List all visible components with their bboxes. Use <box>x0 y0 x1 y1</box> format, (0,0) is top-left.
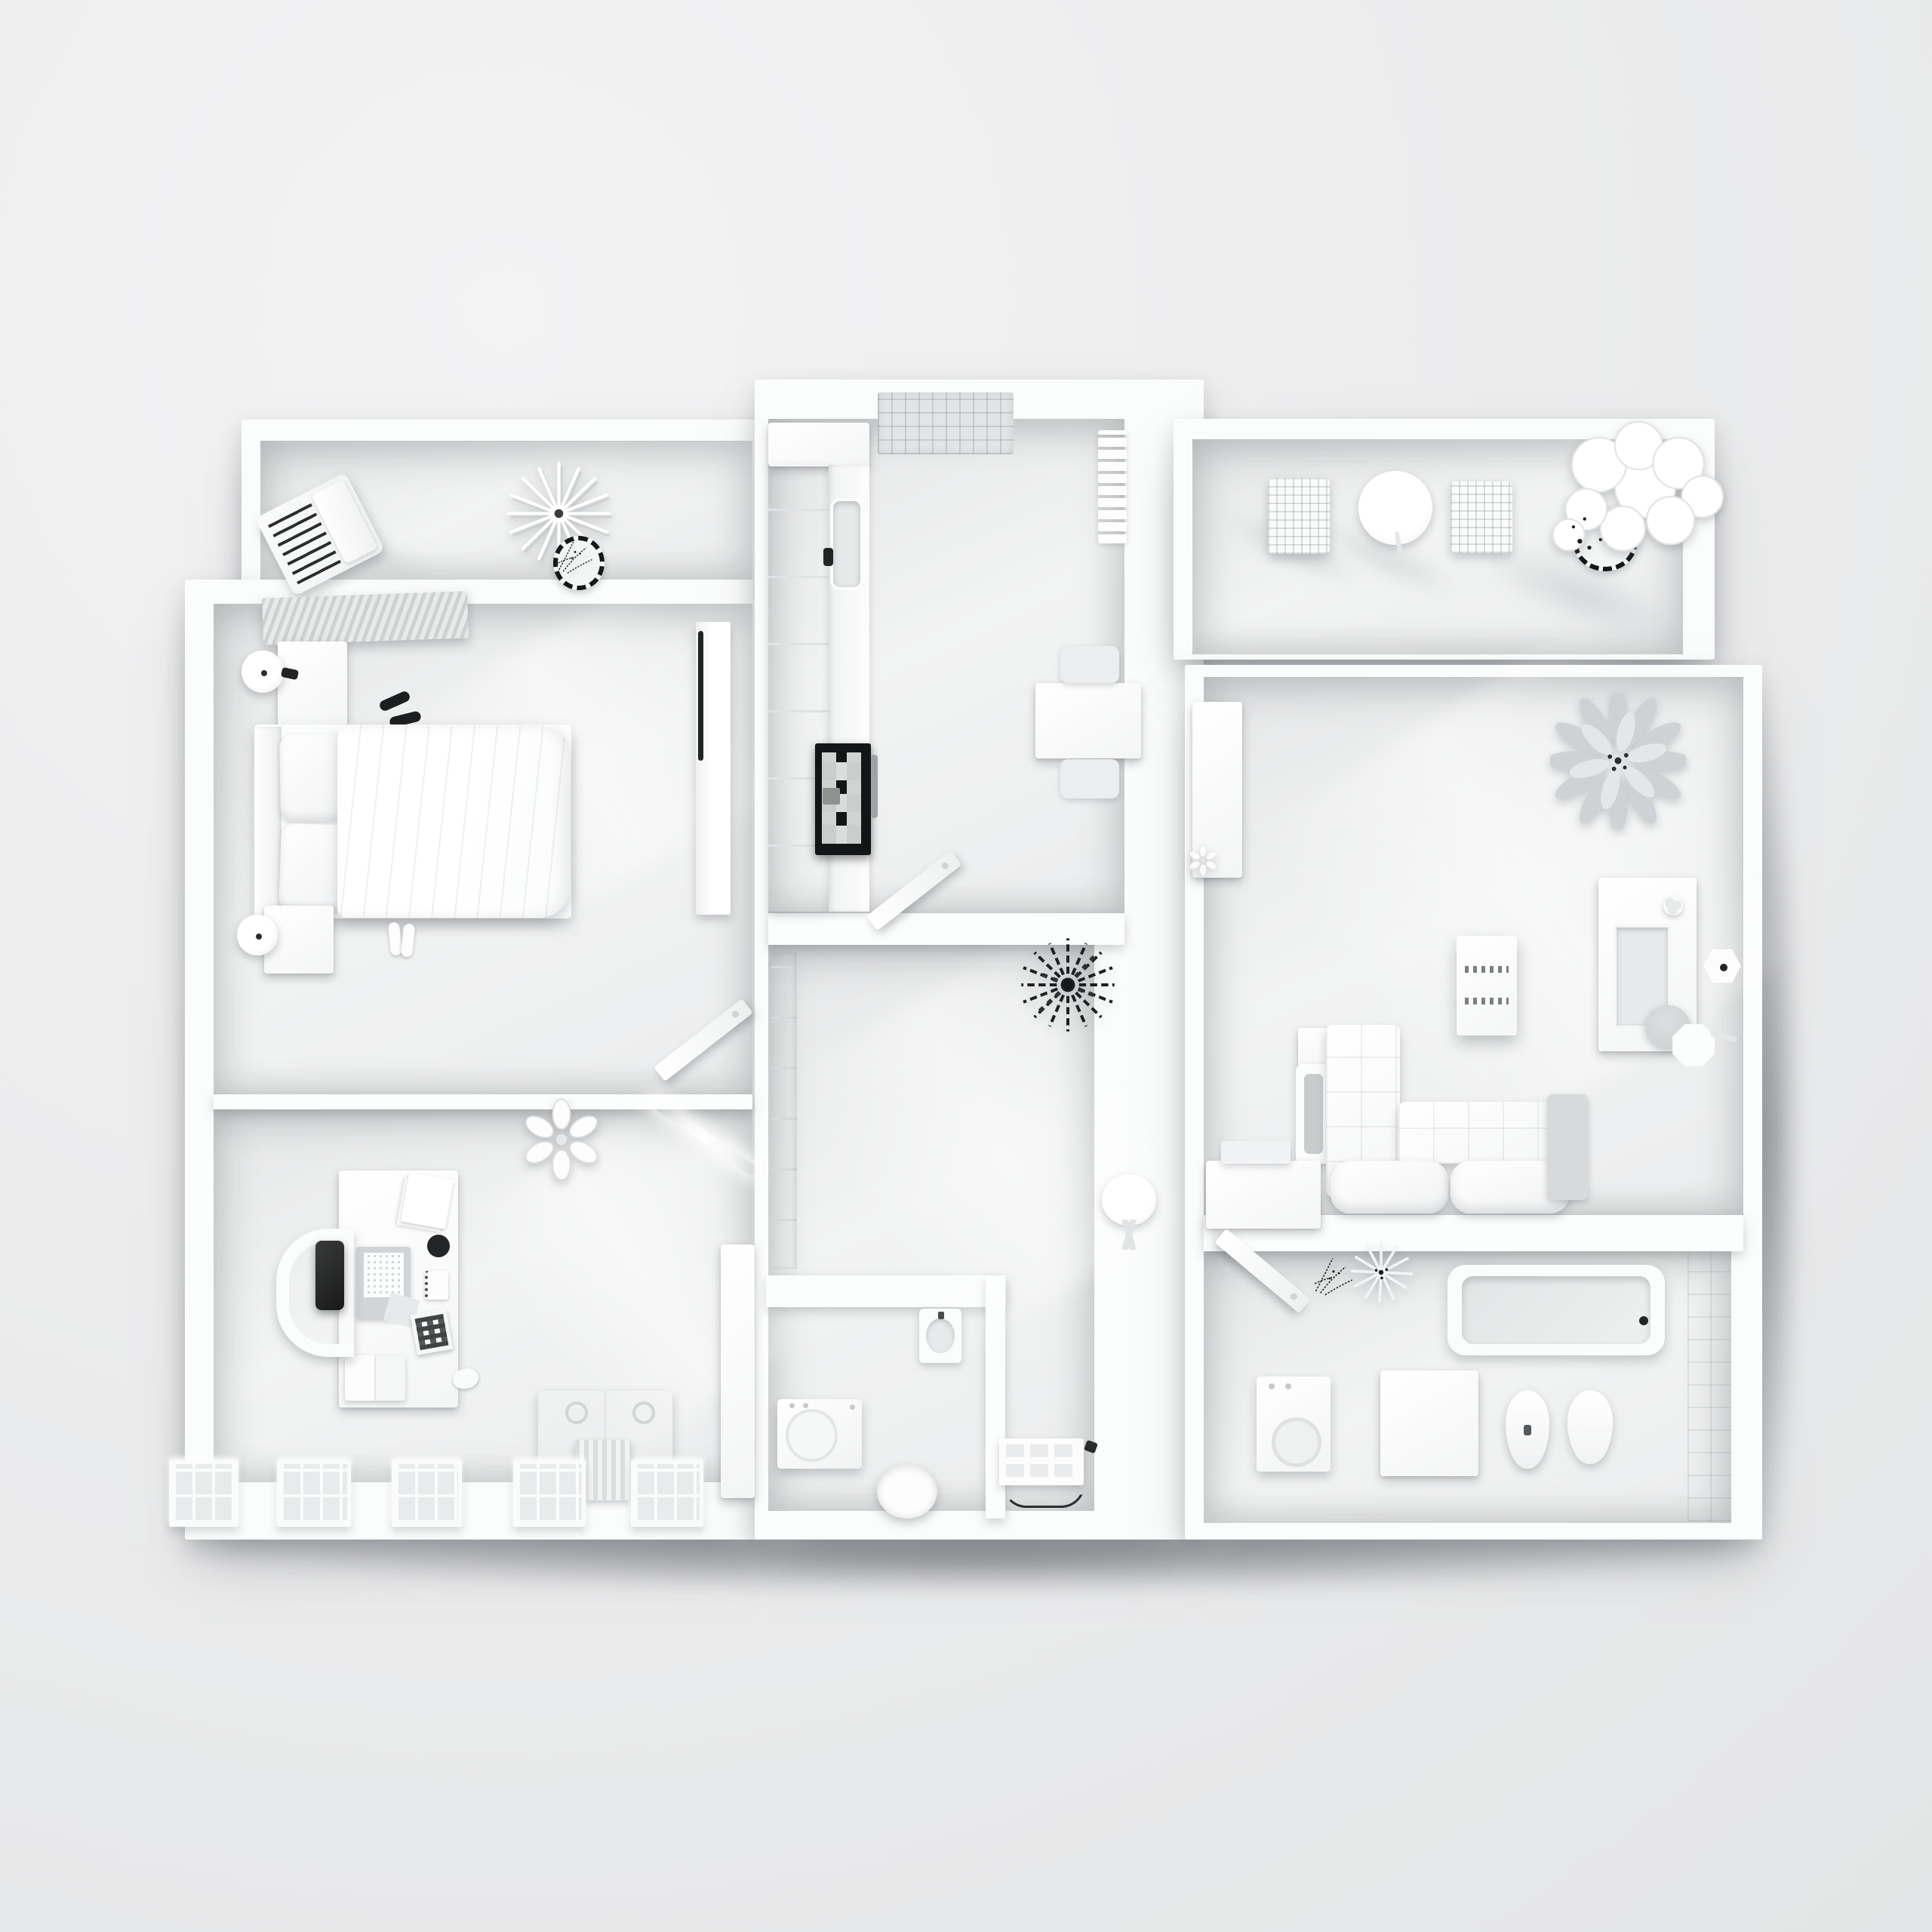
bistro-chair-right <box>1451 481 1512 553</box>
stove <box>815 743 871 855</box>
small-flower <box>1186 844 1220 877</box>
bath-washing-machine <box>1257 1377 1331 1472</box>
magazine <box>411 1309 454 1355</box>
tree-foliage-icon <box>1531 408 1736 583</box>
pot-leaves <box>554 534 596 578</box>
notebook <box>425 1271 448 1300</box>
office-chair-seat <box>315 1241 344 1310</box>
office-window-5 <box>631 1460 703 1527</box>
sofa-corner-block <box>1298 1028 1328 1067</box>
kitchen-ceiling-vent <box>878 392 1014 454</box>
wc-basin <box>919 1309 961 1363</box>
office-window-1 <box>169 1460 238 1527</box>
laundry-basket <box>877 1464 937 1518</box>
bath-wall-tiles <box>1687 1253 1731 1521</box>
bath-spiky-flower <box>1340 1238 1423 1307</box>
door-swing-arc <box>1002 1484 1085 1508</box>
tub-drain <box>1639 1316 1648 1325</box>
open-book <box>345 1355 405 1401</box>
dining-chair-north <box>1060 646 1119 683</box>
coffee-table <box>1206 1161 1321 1229</box>
ac-band <box>1330 712 1481 728</box>
shower-cabinet <box>1380 1371 1478 1476</box>
flower-petals-icon <box>1186 844 1220 877</box>
fridge-top <box>768 423 869 466</box>
papers <box>401 1172 454 1229</box>
ac-vent <box>1374 679 1480 717</box>
pillow-bottom <box>278 823 346 913</box>
hall-shelf-niche <box>771 952 797 1269</box>
duvet <box>337 726 570 918</box>
flower-petals-icon <box>518 1096 605 1183</box>
pedestal-fan-head <box>1102 1174 1156 1226</box>
wc-washing-machine <box>777 1399 862 1469</box>
kitchen-sink <box>830 498 863 590</box>
sofa-seat-1 <box>1331 1161 1448 1214</box>
flower-decal <box>518 1096 605 1183</box>
bathtub <box>1447 1265 1665 1355</box>
office-window-4 <box>513 1460 586 1527</box>
ladder-shelf <box>1098 430 1127 543</box>
office-window-3 <box>392 1460 462 1527</box>
nightstand-top <box>278 641 347 726</box>
tray-decor <box>1221 1141 1291 1164</box>
lamp-bottom <box>237 915 278 955</box>
pillow-top <box>279 734 346 821</box>
terrace-tree-foliage <box>1531 408 1736 583</box>
entry-door <box>999 1438 1084 1485</box>
palm-plant <box>1550 693 1686 829</box>
dark-starburst-plant-icon <box>1016 934 1120 1035</box>
palm-plant-icon <box>1550 693 1686 829</box>
oven-handle <box>871 755 878 818</box>
office-window-2 <box>277 1460 351 1527</box>
laptop <box>356 1247 411 1319</box>
bistro-chair-left <box>1268 478 1330 554</box>
tv-screen-edge <box>698 631 703 761</box>
candle-cluster-top <box>1663 897 1683 915</box>
wardrobe <box>262 591 469 645</box>
spiky-flower-icon <box>1340 1238 1423 1307</box>
dining-chair-south <box>1060 759 1119 798</box>
office-tall-cabinet <box>721 1244 755 1498</box>
sofa-back <box>1398 1102 1558 1164</box>
sofa-arm-right <box>1547 1094 1588 1200</box>
wall-unit <box>1457 936 1517 1035</box>
pedestal-fan-legs <box>1106 1220 1152 1250</box>
lamp-top <box>241 651 284 693</box>
floor-plan-stage <box>0 0 1932 1932</box>
mug <box>427 1235 450 1257</box>
faucet <box>823 548 833 566</box>
dining-table <box>1035 683 1141 758</box>
fern-decal-icon <box>554 534 596 578</box>
starburst-plant <box>1016 934 1120 1035</box>
